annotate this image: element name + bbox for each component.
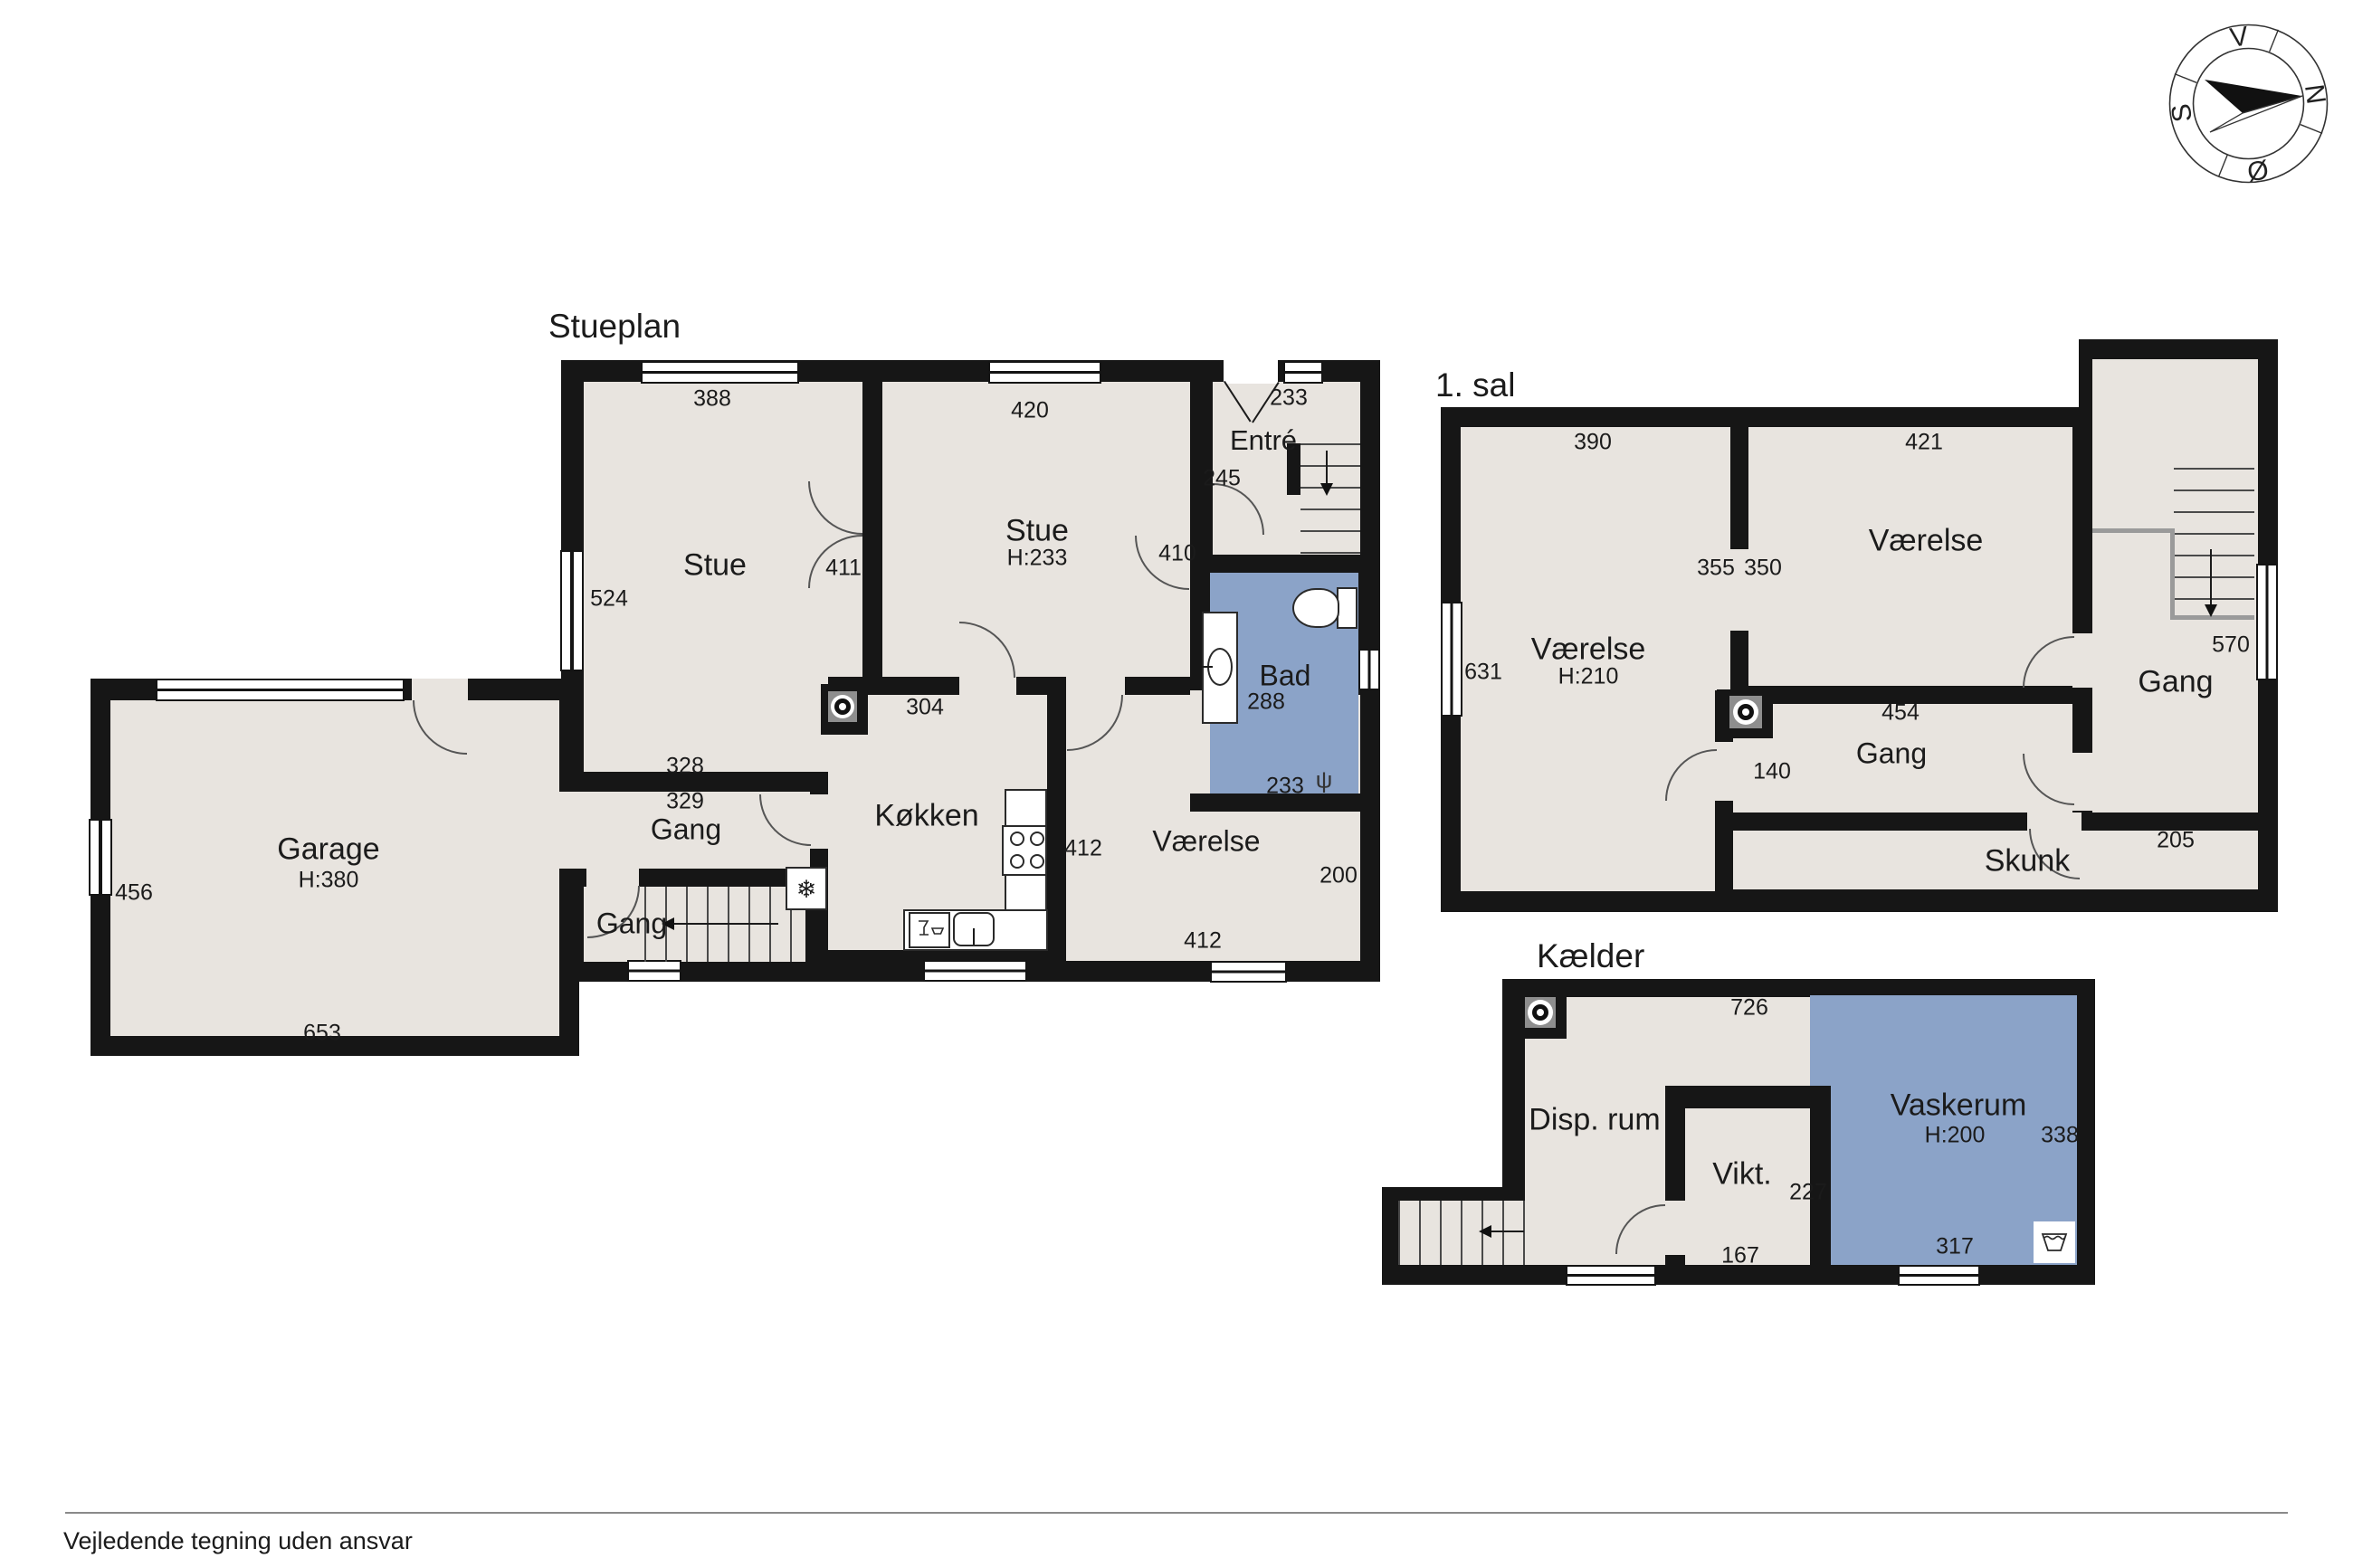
stairs-arrow-head xyxy=(2205,604,2217,617)
room-label: Disp. rum xyxy=(1529,1103,1660,1138)
room-label: Skunk xyxy=(1985,844,2071,879)
window xyxy=(1441,602,1462,717)
dim-label: 388 xyxy=(693,386,731,413)
window xyxy=(1358,649,1380,690)
toilet-bowl xyxy=(1292,588,1339,628)
stairs-arrow xyxy=(1491,1231,1524,1232)
basement-title: Kælder xyxy=(1537,937,1644,975)
stairs-basement xyxy=(1398,1201,1525,1265)
window xyxy=(1210,961,1287,983)
dim-label: 329 xyxy=(666,789,704,815)
door-opening xyxy=(559,796,584,867)
dim-label: 233 xyxy=(1270,385,1308,412)
stairs-arrow xyxy=(674,923,778,925)
door-opening xyxy=(959,677,1016,695)
washing-machine xyxy=(2034,1221,2075,1263)
room-label: Gang xyxy=(651,813,721,847)
dim-label: 227 xyxy=(1789,1180,1827,1206)
window xyxy=(627,960,681,982)
room-label: Gang xyxy=(2138,665,2213,700)
door-opening xyxy=(1715,742,1733,801)
dim-label: 412 xyxy=(1184,928,1222,955)
dim-label: 410 xyxy=(1158,541,1196,567)
room-label: Stue xyxy=(1005,514,1069,549)
stove-burner xyxy=(1010,832,1024,846)
room-stue1 xyxy=(584,382,862,677)
height-label: H:210 xyxy=(1558,664,1619,690)
dim-label: 653 xyxy=(303,1021,341,1047)
dim-label: 233 xyxy=(1266,774,1304,800)
dim-label: 288 xyxy=(1247,689,1285,716)
stairs-arrow-head xyxy=(1320,483,1333,496)
dim-label: 140 xyxy=(1753,759,1791,785)
compass-east: Ø xyxy=(2245,154,2271,186)
room-label: Vikt. xyxy=(1712,1157,1772,1193)
floor-plan-page: Stueplan xyxy=(0,0,2353,1568)
window xyxy=(1898,1265,1980,1286)
window xyxy=(1283,361,1323,384)
room-label: Gang xyxy=(1856,737,1927,771)
door-opening xyxy=(586,869,639,887)
window xyxy=(988,361,1101,384)
dim-label: 167 xyxy=(1721,1243,1759,1269)
first-floor-title: 1. sal xyxy=(1435,366,1515,404)
dim-label: 390 xyxy=(1574,430,1612,456)
height-label: H:380 xyxy=(299,868,359,894)
dim-label: 456 xyxy=(115,880,153,907)
stairs-entre xyxy=(1300,443,1360,554)
compass-rose: N Ø S V xyxy=(2165,20,2332,187)
stove-burner xyxy=(1030,832,1044,846)
door-opening xyxy=(1665,1201,1685,1255)
dim-label: 726 xyxy=(1730,995,1768,1022)
room-label: Garage xyxy=(277,832,379,868)
height-label: H:233 xyxy=(1007,546,1068,572)
window xyxy=(156,679,405,701)
stairs-hall xyxy=(2174,468,2254,619)
dim-label: 245 xyxy=(1203,466,1241,492)
dim-label: 328 xyxy=(666,754,704,780)
dim-label: 205 xyxy=(2157,828,2195,854)
room-label: Værelse xyxy=(1531,632,1646,668)
chimney-icon xyxy=(839,703,846,710)
window xyxy=(1566,1265,1656,1286)
dim-label: 350 xyxy=(1744,556,1782,582)
dim-label: 420 xyxy=(1011,398,1049,424)
room-label: Køkken xyxy=(874,799,978,834)
door-opening xyxy=(810,794,828,849)
dim-label: 304 xyxy=(906,695,944,721)
dim-label: 454 xyxy=(1881,700,1920,727)
dim-label: 524 xyxy=(590,586,628,613)
footer-disclaimer: Vejledende tegning uden ansvar xyxy=(63,1527,413,1555)
door-opening xyxy=(412,679,468,702)
snowflake-icon: ❄ xyxy=(796,876,817,903)
dim-label: 412 xyxy=(1064,836,1102,862)
tap xyxy=(1202,666,1213,668)
door-opening xyxy=(2072,633,2092,688)
room-label: Entré xyxy=(1230,424,1297,457)
stove-burner xyxy=(1030,854,1044,869)
fridge: ❄ xyxy=(786,867,827,910)
stair-landing-edge xyxy=(2170,528,2175,619)
window xyxy=(923,960,1027,982)
window xyxy=(641,361,799,384)
room-label: Bad xyxy=(1260,660,1311,693)
dim-label: 338 xyxy=(2041,1123,2079,1149)
stairs-arrow xyxy=(1326,451,1328,483)
door-opening xyxy=(2072,753,2092,811)
dishwasher-icon xyxy=(910,914,948,946)
chimney-icon xyxy=(1537,1009,1544,1016)
dim-label: 570 xyxy=(2212,632,2250,659)
dim-label: 631 xyxy=(1464,660,1502,686)
chimney-icon xyxy=(1742,708,1749,716)
dim-label: 317 xyxy=(1936,1234,1974,1260)
door-opening xyxy=(1066,677,1125,695)
room-label: Gang xyxy=(596,908,667,941)
dim-label: 200 xyxy=(1319,863,1357,889)
door-opening xyxy=(2027,813,2081,831)
ground-floor-title: Stueplan xyxy=(548,308,681,346)
room-label: Vaskerum xyxy=(1891,1088,2027,1124)
room-label: Stue xyxy=(683,548,747,584)
compass-north: N xyxy=(2299,82,2331,106)
window xyxy=(560,550,584,671)
window xyxy=(2256,564,2278,680)
dim-label: 411 xyxy=(825,556,862,582)
shower-icon: ψ xyxy=(1316,766,1333,794)
stair-landing-edge xyxy=(2092,528,2174,533)
dishwasher xyxy=(909,912,950,948)
height-label: H:200 xyxy=(1925,1123,1986,1149)
window xyxy=(89,819,112,896)
toilet-tank xyxy=(1337,587,1357,629)
sink-divider xyxy=(973,928,975,945)
dim-label: 355 xyxy=(1697,556,1735,582)
stove-burner xyxy=(1010,854,1024,869)
stairs-arrow xyxy=(2210,549,2212,604)
stairs-arrow-head xyxy=(1479,1225,1491,1238)
footer-divider xyxy=(65,1512,2288,1514)
front-door-opening xyxy=(1224,360,1278,384)
dim-label: 421 xyxy=(1905,430,1943,456)
room-label: Værelse xyxy=(1152,825,1260,859)
room-label: Værelse xyxy=(1869,524,1984,559)
washer-icon xyxy=(2034,1221,2075,1263)
